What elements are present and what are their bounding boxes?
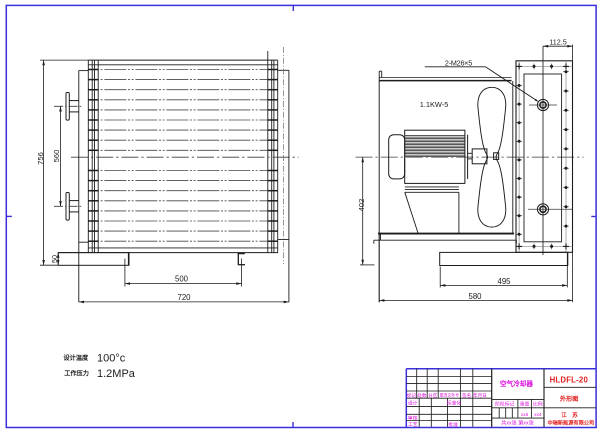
- svg-text:空气冷却器: 空气冷却器: [500, 379, 533, 388]
- svg-text:标准化: 标准化: [447, 400, 462, 407]
- svg-text:50: 50: [50, 255, 59, 263]
- svg-text:工作压力: 工作压力: [64, 370, 89, 378]
- svg-text:设计温度: 设计温度: [64, 354, 90, 362]
- svg-text:江 苏: 江 苏: [561, 411, 578, 419]
- svg-text:签名: 签名: [462, 392, 471, 399]
- svg-text:756: 756: [36, 152, 45, 165]
- svg-text:分区: 分区: [428, 392, 438, 399]
- svg-text:重量: 重量: [520, 401, 530, 408]
- svg-text:审核: 审核: [408, 414, 418, 421]
- svg-text:更改文件号: 更改文件号: [440, 393, 460, 398]
- svg-text:共xx张 第xx张: 共xx张 第xx张: [501, 419, 534, 427]
- svg-text:设计: 设计: [408, 400, 418, 407]
- svg-text:1.1KW-5: 1.1KW-5: [420, 100, 449, 109]
- svg-text:HLDFL-20: HLDFL-20: [550, 375, 589, 384]
- svg-text:100°c: 100°c: [97, 353, 126, 365]
- svg-text:比例: 比例: [533, 401, 543, 408]
- svg-text:标记: 标记: [407, 392, 417, 399]
- svg-text:处数: 处数: [417, 392, 427, 399]
- svg-text:xx5: xx5: [521, 412, 529, 418]
- svg-text:2-M26×5: 2-M26×5: [445, 58, 472, 67]
- svg-text:500: 500: [175, 274, 189, 283]
- svg-text:xx4: xx4: [534, 412, 542, 418]
- svg-text:580: 580: [468, 292, 482, 301]
- svg-text:中瑞新能源有限公司: 中瑞新能源有限公司: [547, 419, 594, 427]
- svg-text:工艺: 工艺: [408, 422, 418, 428]
- svg-text:阶段标记: 阶段标记: [495, 401, 514, 408]
- svg-text:112.5: 112.5: [549, 38, 566, 47]
- svg-text:560: 560: [52, 150, 61, 163]
- svg-text:年月日: 年月日: [473, 392, 487, 399]
- svg-text:402: 402: [357, 199, 366, 212]
- svg-text:批准: 批准: [448, 421, 458, 428]
- svg-text:1.2MPa: 1.2MPa: [97, 368, 136, 380]
- svg-text:495: 495: [497, 277, 511, 286]
- svg-text:720: 720: [177, 293, 191, 302]
- svg-text:外形图: 外形图: [560, 395, 579, 403]
